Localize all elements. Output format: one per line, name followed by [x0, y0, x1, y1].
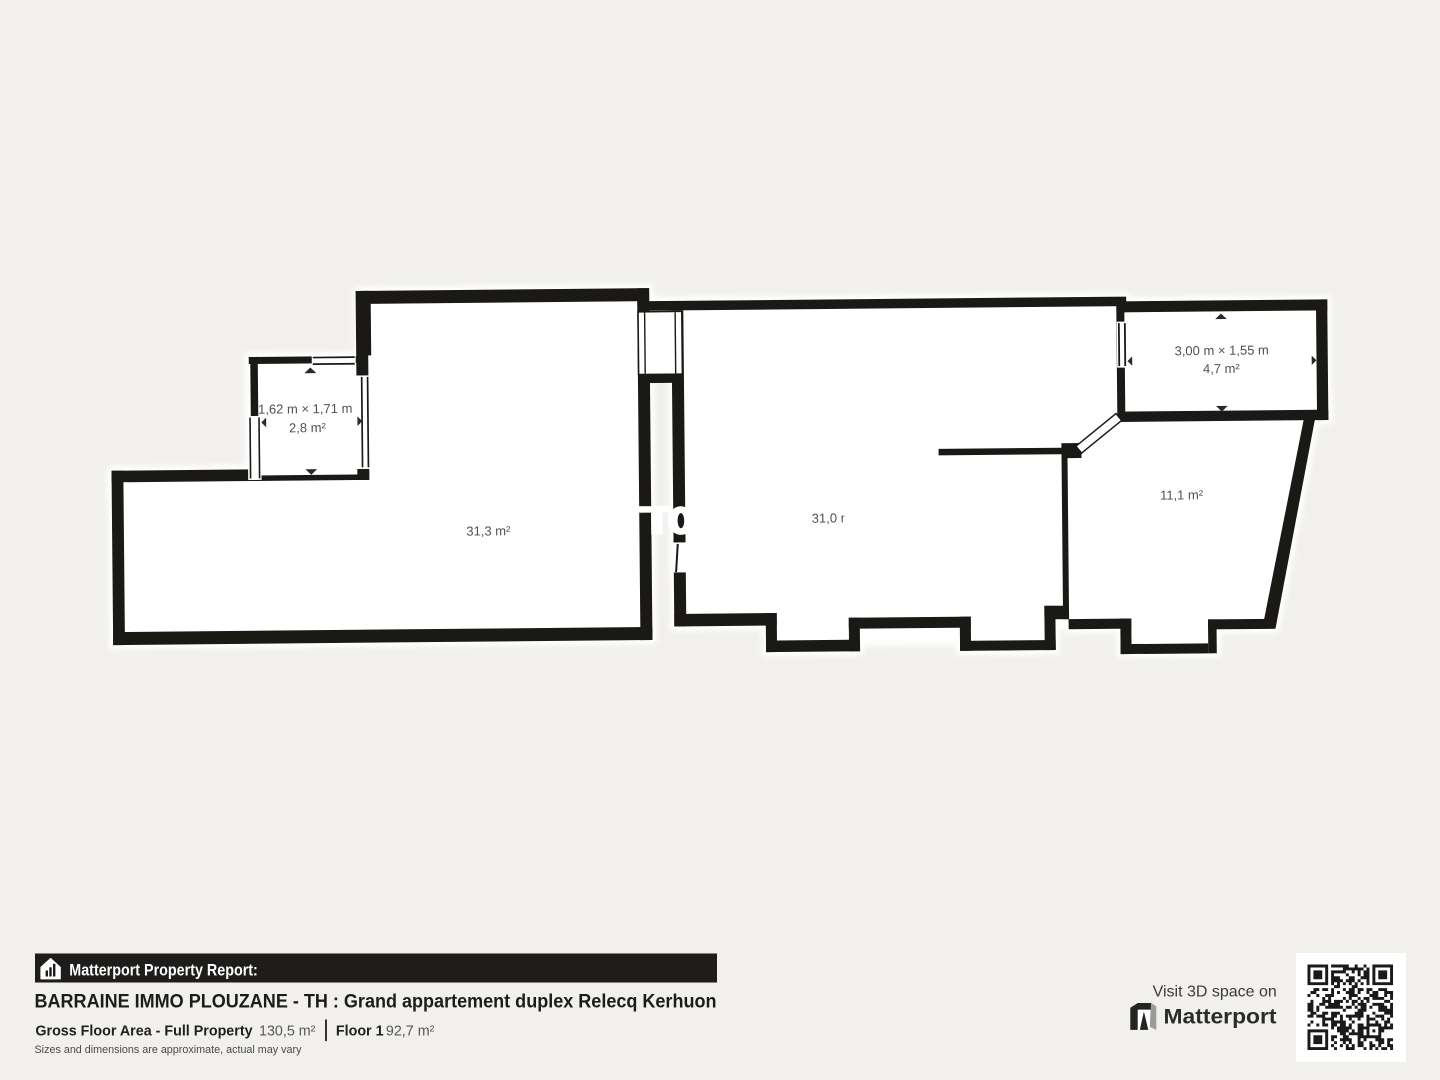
svg-text:11,1 m²: 11,1 m²	[1160, 487, 1204, 502]
svg-text:Visit 3D space on: Visit 3D space on	[1153, 983, 1277, 1000]
svg-text:Matterport: Matterport	[1164, 1005, 1277, 1029]
svg-text:BARRAINE IMMO PLOUZANE - TH :: BARRAINE IMMO PLOUZANE - TH : Grand appa…	[35, 992, 717, 1013]
svg-text:130,5 m²: 130,5 m²	[259, 1023, 316, 1039]
svg-text:Sizes and dimensions are appro: Sizes and dimensions are approximate, ac…	[35, 1044, 302, 1056]
svg-text:Floor 1: Floor 1	[336, 1023, 384, 1039]
svg-text:1,62 m × 1,71 m: 1,62 m × 1,71 m	[258, 401, 352, 417]
svg-text:92,7 m²: 92,7 m²	[386, 1023, 435, 1039]
svg-text:31,3 m²: 31,3 m²	[466, 523, 511, 538]
svg-text:2,8 m²: 2,8 m²	[289, 420, 327, 435]
svg-text:3,00 m × 1,55 m: 3,00 m × 1,55 m	[1174, 342, 1268, 358]
svg-text:4,7 m²: 4,7 m²	[1203, 361, 1241, 376]
svg-text:Matterport Property Report:: Matterport Property Report:	[69, 962, 257, 980]
svg-text:Gross Floor Area - Full Proper: Gross Floor Area - Full Property	[35, 1023, 252, 1039]
